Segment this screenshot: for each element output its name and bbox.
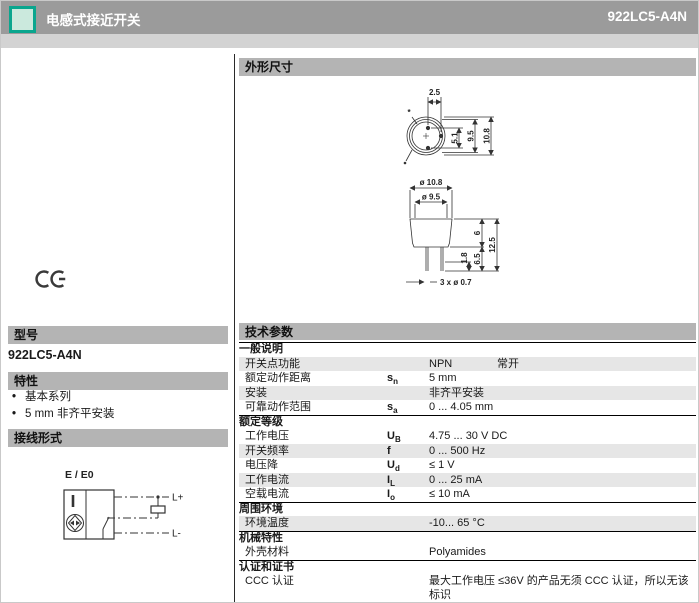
spec-label: 可靠动作范围 <box>239 400 387 415</box>
spec-value: ≤ 1 V <box>429 458 696 473</box>
dim-total-height: 12.5 <box>488 237 497 253</box>
section-title-wiring: 接线形式 <box>8 429 228 447</box>
spec-group-header: 周围环境 <box>239 502 696 517</box>
spec-row: 可靠动作范围sa0 ... 4.05 mm <box>239 400 696 415</box>
column-divider <box>234 54 235 603</box>
spec-label: 空载电流 <box>239 487 387 502</box>
feature-item: 基本系列 <box>8 391 228 404</box>
spec-symbol: f <box>387 444 429 459</box>
ce-mark-icon <box>34 268 74 290</box>
datasheet-page: 电感式接近开关 922LC5-A4N 型号 922LC5-A4N 特性 基本系列… <box>0 0 699 603</box>
top-view <box>404 97 494 164</box>
product-family-icon <box>9 6 36 33</box>
load-symbol <box>151 506 165 513</box>
header-substrip <box>1 34 699 48</box>
dim-pin-pitch: 2.5 <box>429 88 441 97</box>
spec-label: 工作电流 <box>239 473 387 488</box>
spec-symbol: IL <box>387 473 429 488</box>
switch-contact-symbol <box>103 517 109 539</box>
spec-value: NPN常开 <box>429 357 696 372</box>
spec-row: 工作电压UB4.75 ... 30 V DC <box>239 429 696 444</box>
spec-group-header: 认证和证书 <box>239 560 696 575</box>
page-title: 电感式接近开关 <box>46 9 141 29</box>
wiring-diagram: E / E0 L+ L- <box>41 463 191 555</box>
spec-row: 空载电流Io≤ 10 mA <box>239 487 696 502</box>
spec-symbol: Ud <box>387 458 429 473</box>
spec-symbol: UB <box>387 429 429 444</box>
spec-value: 最大工作电压 ≤36V 的产品无须 CCC 认证，所以无该标识 <box>429 574 696 603</box>
spec-symbol <box>387 386 429 401</box>
spec-label: 外壳材料 <box>239 545 387 560</box>
spec-value: 0 ... 25 mA <box>429 473 696 488</box>
spec-value: 0 ... 4.05 mm <box>429 400 696 415</box>
spec-row: 电压降Ud≤ 1 V <box>239 458 696 473</box>
wiring-diagram-label: E / E0 <box>65 469 94 481</box>
spec-row: 外壳材料Polyamides <box>239 545 696 560</box>
terminal-l-plus: L+ <box>172 493 184 504</box>
spec-symbol <box>387 357 429 372</box>
spec-symbol: sa <box>387 400 429 415</box>
spec-symbol <box>387 545 429 560</box>
note-asterisk: * <box>407 108 411 117</box>
spec-group-header: 一般说明 <box>239 342 696 357</box>
spec-row: 环境温度-10... 65 °C <box>239 516 696 531</box>
dimension-drawing: 2.5 * 5.1 9.5 10.8 <box>381 81 521 293</box>
spec-symbol <box>387 516 429 531</box>
spec-value: Polyamides <box>429 545 696 560</box>
spec-label: 额定动作距离 <box>239 371 387 386</box>
features-list: 基本系列 5 mm 非齐平安装 <box>8 391 228 425</box>
spec-row: 开关频率f0 ... 500 Hz <box>239 444 696 459</box>
terminal-l-minus: L- <box>172 529 181 540</box>
spec-value: ≤ 10 mA <box>429 487 696 502</box>
dim-body-height: 6 <box>473 230 482 235</box>
specs-table: 一般说明开关点功能NPN常开额定动作距离sn5 mm安装非齐平安装可靠动作范围s… <box>239 342 696 603</box>
spec-row: 额定动作距离sn5 mm <box>239 371 696 386</box>
spec-label: CCC 认证 <box>239 574 387 603</box>
proximity-sensor-symbol <box>67 515 84 532</box>
spec-group-header: 机械特性 <box>239 531 696 546</box>
spec-label: 开关点功能 <box>239 357 387 372</box>
spec-group-header: 额定等级 <box>239 415 696 430</box>
spec-value: 非齐平安装 <box>429 386 696 401</box>
dim-outer-diameter: 10.8 <box>483 128 492 144</box>
dim-pin-offset: 1.8 <box>460 252 469 264</box>
spec-symbol: sn <box>387 371 429 386</box>
side-view <box>406 188 499 282</box>
dim-pin-length: 6.5 <box>473 253 482 265</box>
spec-label: 电压降 <box>239 458 387 473</box>
spec-row: 工作电流IL0 ... 25 mA <box>239 473 696 488</box>
dim-pin-span: 5.1 <box>451 132 460 144</box>
section-title-dimensions: 外形尺寸 <box>239 58 696 76</box>
spec-value: 4.75 ... 30 V DC <box>429 429 696 444</box>
spec-symbol: Io <box>387 487 429 502</box>
spec-label: 开关频率 <box>239 444 387 459</box>
dim-pin-note: 3 x ø 0.7 <box>440 278 472 287</box>
spec-label: 环境温度 <box>239 516 387 531</box>
dim-inner-diameter: 9.5 <box>467 130 476 142</box>
dim-side-face-diameter: ø 9.5 <box>422 193 441 202</box>
spec-value: 5 mm <box>429 371 696 386</box>
header-model-number: 922LC5-A4N <box>607 9 687 24</box>
section-title-model: 型号 <box>8 326 228 344</box>
dim-side-outer-diameter: ø 10.8 <box>420 178 443 187</box>
section-title-specs: 技术参数 <box>239 323 696 340</box>
feature-item: 5 mm 非齐平安装 <box>8 408 228 421</box>
spec-value: 0 ... 500 Hz <box>429 444 696 459</box>
spec-value: -10... 65 °C <box>429 516 696 531</box>
spec-row: CCC 认证最大工作电压 ≤36V 的产品无须 CCC 认证，所以无该标识 <box>239 574 696 603</box>
spec-label: 安装 <box>239 386 387 401</box>
section-title-features: 特性 <box>8 372 228 390</box>
spec-row: 安装非齐平安装 <box>239 386 696 401</box>
model-number: 922LC5-A4N <box>8 348 82 362</box>
spec-label: 工作电压 <box>239 429 387 444</box>
spec-row: 开关点功能NPN常开 <box>239 357 696 372</box>
spec-symbol <box>387 574 429 603</box>
